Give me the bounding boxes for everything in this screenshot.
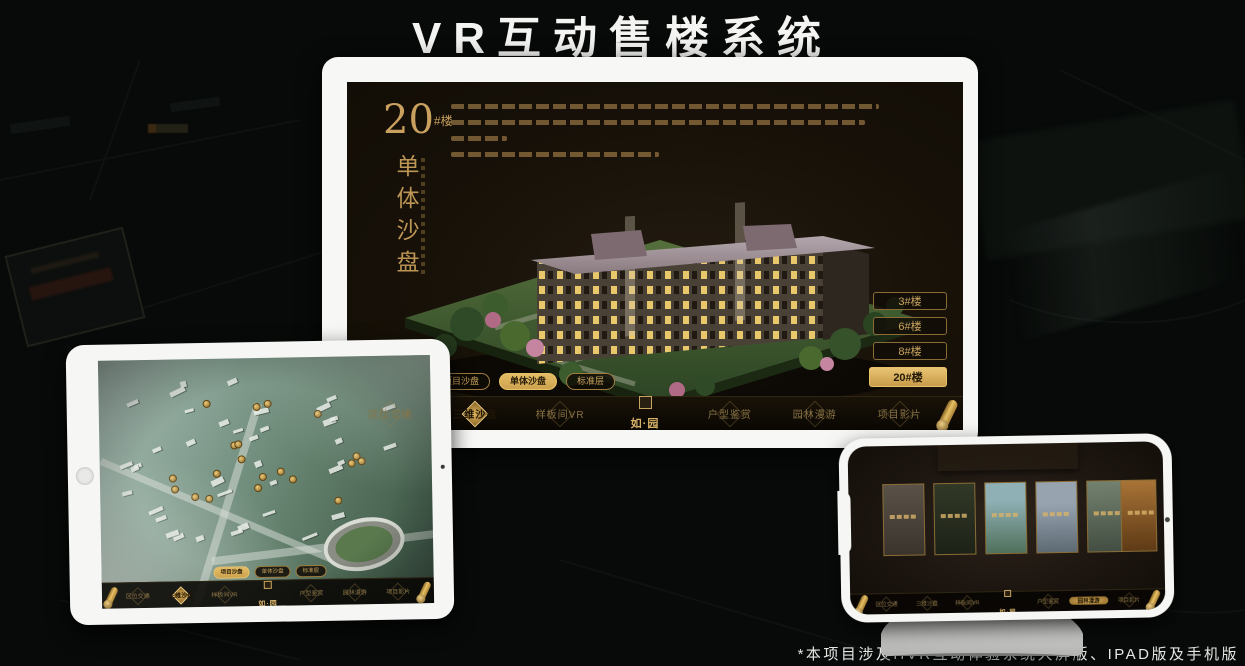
brand-name: 如·园 [258, 600, 277, 607]
brand-logo: 如·园 [988, 586, 1027, 615]
phone-menu-bar: 区位交通 三维沙盘 样板间VR 如·园 户型鉴赏 园林漫游 项目影片 [850, 588, 1165, 614]
brand-logo: 如·园 [247, 577, 289, 609]
menu-showroom-vr[interactable]: 样板间VR [519, 406, 602, 421]
menu-floorplan[interactable]: 户型鉴赏 [688, 406, 771, 421]
menu-floorplan[interactable]: 户型鉴赏 [291, 588, 333, 598]
scroll-icon[interactable] [1146, 589, 1161, 610]
menu-showroom-vr[interactable]: 样板间VR [948, 598, 987, 607]
menu-project-film[interactable]: 项目影片 [377, 586, 419, 596]
gallery-panel-2[interactable] [933, 483, 976, 556]
phone-screen: 区位交通 三维沙盘 样板间VR 如·园 户型鉴赏 园林漫游 项目影片 [848, 441, 1166, 614]
interior-backdrop [938, 443, 1078, 471]
brand-name: 如·园 [631, 418, 660, 430]
tab-project-sandtable[interactable]: 项目沙盘 [213, 566, 249, 579]
home-button[interactable] [76, 467, 94, 485]
building-number-suffix: #楼 [434, 114, 453, 128]
building-number: 20 [383, 97, 434, 143]
poster-canvas: VR互动售楼系统 *本项目涉及HVR互动体验系统大屏版、IPAD版及手机版 20… [0, 0, 1245, 666]
floor-button-3[interactable]: 3#楼 [873, 292, 947, 310]
brand-logo: 如·园 [604, 396, 687, 430]
gallery-panel-4[interactable] [1035, 481, 1078, 554]
menu-floorplan[interactable]: 户型鉴赏 [1029, 597, 1068, 606]
view-tab-group: 项目沙盘 单体沙盘 标准层 [432, 373, 615, 390]
brand-seal-icon [1004, 590, 1011, 597]
building-heading: 20#楼 [383, 100, 453, 140]
tablet-screen: 项目沙盘 单体沙盘 标准层 区位交通 三维沙盘 样板间VR 如·园 户型鉴赏 园… [98, 355, 434, 609]
tab-standard-floor[interactable]: 标准层 [295, 565, 326, 578]
menu-garden-tour[interactable]: 园林漫游 [773, 406, 856, 421]
camera-dot [1165, 517, 1170, 522]
menu-location-traffic[interactable]: 区位交通 [349, 406, 432, 421]
phone-notch [837, 491, 851, 555]
phone-device: 区位交通 三维沙盘 样板间VR 如·园 户型鉴赏 园林漫游 项目影片 [838, 433, 1174, 623]
menu-3d-sandtable[interactable]: 三维沙盘 [160, 590, 202, 600]
menu-project-film[interactable]: 项目影片 [858, 406, 941, 421]
brand-name: 如·园 [999, 610, 1016, 615]
menu-garden-tour[interactable]: 园林漫游 [1069, 596, 1108, 605]
menu-location-traffic[interactable]: 区位交通 [117, 591, 159, 601]
background-brand-mark [148, 124, 188, 133]
tab-single-sandtable[interactable]: 单体沙盘 [499, 373, 557, 390]
floor-button-group: 3#楼 6#楼 8#楼 20#楼 [869, 292, 947, 387]
floor-button-6[interactable]: 6#楼 [873, 317, 947, 335]
tab-standard-floor[interactable]: 标准层 [566, 373, 615, 390]
gallery-panel-1[interactable] [882, 483, 925, 556]
menu-project-film[interactable]: 项目影片 [1110, 596, 1149, 605]
tablet-device: 项目沙盘 单体沙盘 标准层 区位交通 三维沙盘 样板间VR 如·园 户型鉴赏 园… [66, 339, 455, 626]
tablet-menu-bar: 区位交通 三维沙盘 样板间VR 如·园 户型鉴赏 园林漫游 项目影片 [102, 577, 434, 609]
menu-garden-tour[interactable]: 园林漫游 [334, 587, 376, 597]
scroll-icon[interactable] [417, 580, 432, 601]
menu-showroom-vr[interactable]: 样板间VR [204, 589, 246, 599]
brand-seal-icon [639, 396, 652, 409]
floor-button-8[interactable]: 8#楼 [873, 342, 947, 360]
camera-dot [441, 465, 445, 469]
floor-button-20-active[interactable]: 20#楼 [869, 367, 947, 387]
gallery-panel-6[interactable] [1120, 479, 1157, 552]
menu-3d-sandtable[interactable]: 三维沙盘 [434, 406, 517, 421]
gallery-panel-3[interactable] [984, 482, 1027, 555]
menu-location-traffic[interactable]: 区位交通 [867, 600, 906, 609]
menu-3d-sandtable[interactable]: 三维沙盘 [908, 599, 947, 608]
brand-seal-icon [264, 580, 272, 588]
